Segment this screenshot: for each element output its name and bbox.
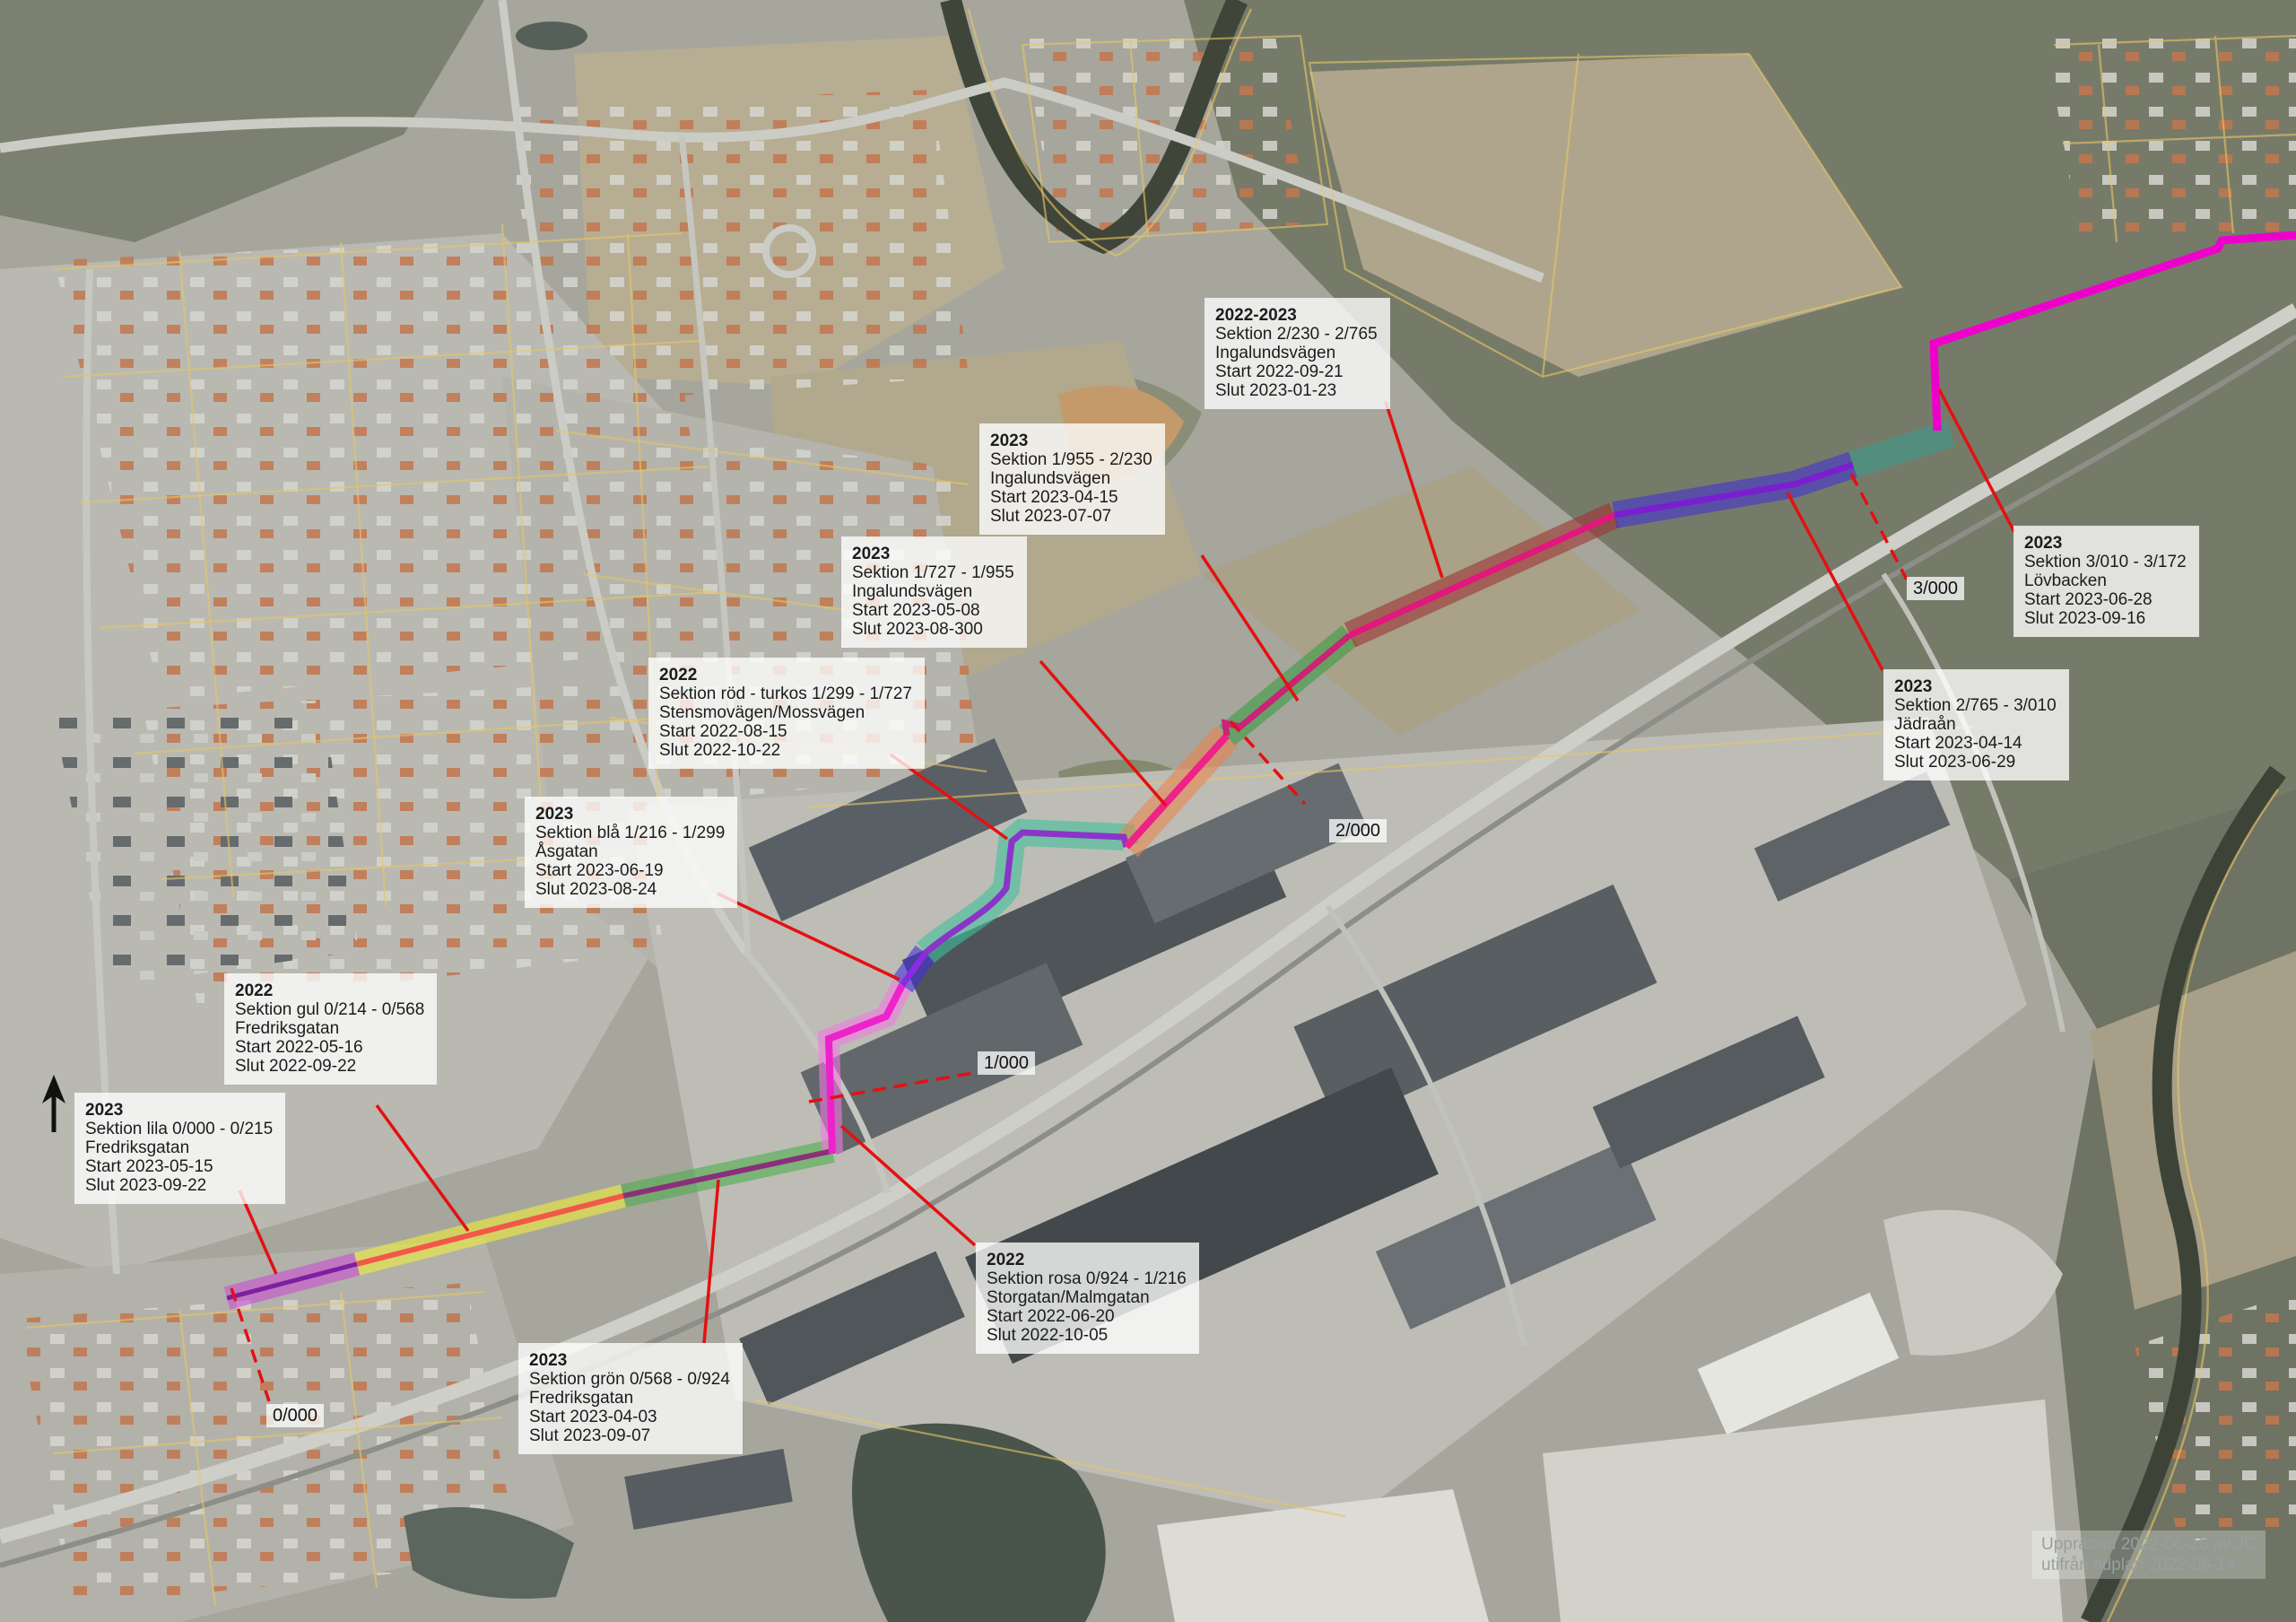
callout-sektion-1955-2230: 2023 Sektion 1/955 - 2/230 Ingalundsväge… (979, 423, 1165, 535)
callout-slut: Slut 2023-09-07 (529, 1426, 730, 1445)
callout-start: Start 2022-06-20 (987, 1307, 1187, 1326)
callout-start: Start 2023-04-14 (1894, 734, 2057, 753)
callout-street: Ingalundsvägen (990, 469, 1152, 488)
callout-year: 2022-2023 (1215, 306, 1378, 325)
callout-section: Sektion 3/010 - 3/172 (2024, 553, 2187, 571)
callout-sektion-gul: 2022 Sektion gul 0/214 - 0/568 Fredriksg… (224, 973, 437, 1085)
callout-year: 2023 (990, 432, 1152, 450)
callout-slut: Slut 2022-10-05 (987, 1326, 1187, 1345)
chainage-label-3000: 3/000 (1907, 577, 1964, 600)
callout-sektion-1727-1955: 2023 Sektion 1/727 - 1/955 Ingalundsväge… (841, 536, 1027, 648)
callout-sektion-lila: 2023 Sektion lila 0/000 - 0/215 Fredriks… (74, 1093, 285, 1204)
callout-street: Ingalundsvägen (852, 582, 1014, 601)
route-line-gron (623, 1151, 832, 1196)
callout-year: 2022 (987, 1251, 1187, 1269)
callout-section: Sektion gul 0/214 - 0/568 (235, 1000, 424, 1019)
callout-section: Sektion röd - turkos 1/299 - 1/727 (659, 685, 912, 703)
callout-start: Start 2023-05-08 (852, 601, 1014, 620)
callout-section: Sektion blå 1/216 - 1/299 (535, 824, 725, 842)
callout-slut: Slut 2022-10-22 (659, 741, 912, 760)
callout-start: Start 2022-09-21 (1215, 362, 1378, 381)
callout-street: Fredriksgatan (529, 1389, 730, 1408)
callout-slut: Slut 2023-01-23 (1215, 381, 1378, 400)
north-arrow-icon (42, 1075, 65, 1132)
callout-street: Ingalundsvägen (1215, 344, 1378, 362)
attribution-line1: Upprättad 2022-06-16 av JC (2041, 1534, 2257, 1555)
attribution-line2: utifrån tidplan 2022-06-14 (2041, 1555, 2257, 1575)
callout-section: Sektion grön 0/568 - 0/924 (529, 1370, 730, 1389)
callout-year: 2023 (529, 1351, 730, 1370)
callout-sektion-rod-turkos: 2022 Sektion röd - turkos 1/299 - 1/727 … (648, 658, 925, 769)
callout-slut: Slut 2023-08-24 (535, 880, 725, 899)
callout-sektion-bla: 2023 Sektion blå 1/216 - 1/299 Åsgatan S… (525, 797, 737, 908)
callout-start: Start 2023-06-28 (2024, 590, 2187, 609)
callout-year: 2022 (235, 981, 424, 1000)
route-band-turkos (926, 833, 1126, 953)
callout-sektion-rosa: 2022 Sektion rosa 0/924 - 1/216 Storgata… (976, 1243, 1199, 1354)
callout-start: Start 2022-08-15 (659, 722, 912, 741)
callout-start: Start 2023-04-15 (990, 488, 1152, 507)
route-overlay (0, 0, 2296, 1622)
callout-street: Fredriksgatan (235, 1019, 424, 1038)
callout-sektion-2230-2765: 2022-2023 Sektion 2/230 - 2/765 Ingalund… (1205, 298, 1390, 409)
callout-street: Åsgatan (535, 842, 725, 861)
callout-slut: Slut 2023-09-22 (85, 1176, 273, 1195)
callout-slut: Slut 2023-07-07 (990, 507, 1152, 526)
callout-start: Start 2022-05-16 (235, 1038, 424, 1057)
callout-sektion-jadraan: 2023 Sektion 2/765 - 3/010 Jädraån Start… (1883, 669, 2069, 780)
callout-year: 2023 (852, 545, 1014, 563)
callout-slut: Slut 2023-08-300 (852, 620, 1014, 639)
construction-plan-map: 2023 Sektion lila 0/000 - 0/215 Fredriks… (0, 0, 2296, 1622)
callout-slut: Slut 2023-09-16 (2024, 609, 2187, 628)
callout-street: Jädraån (1894, 715, 2057, 734)
callout-sektion-lovbacken: 2023 Sektion 3/010 - 3/172 Lövbacken Sta… (2013, 526, 2199, 637)
callout-slut: Slut 2022-09-22 (235, 1057, 424, 1076)
callout-sektion-gron: 2023 Sektion grön 0/568 - 0/924 Fredriks… (518, 1343, 743, 1454)
callout-section: Sektion lila 0/000 - 0/215 (85, 1120, 273, 1138)
callout-start: Start 2023-06-19 (535, 861, 725, 880)
callout-year: 2023 (85, 1101, 273, 1120)
callout-start: Start 2023-04-03 (529, 1408, 730, 1426)
callout-section: Sektion 2/230 - 2/765 (1215, 325, 1378, 344)
callout-year: 2022 (659, 666, 912, 685)
callout-street: Stensmovägen/Mossvägen (659, 703, 912, 722)
callout-street: Fredriksgatan (85, 1138, 273, 1157)
callout-section: Sektion rosa 0/924 - 1/216 (987, 1269, 1187, 1288)
callout-year: 2023 (2024, 534, 2187, 553)
route-line-magenta (1934, 235, 2296, 431)
route-line-orange (1126, 736, 1227, 847)
callout-section: Sektion 1/955 - 2/230 (990, 450, 1152, 469)
callout-street: Storgatan/Malmgatan (987, 1288, 1187, 1307)
callout-start: Start 2023-05-15 (85, 1157, 273, 1176)
callout-year: 2023 (535, 805, 725, 824)
chainage-label-2000: 2/000 (1329, 819, 1387, 842)
route-line-gul (357, 1196, 623, 1264)
callout-street: Lövbacken (2024, 571, 2187, 590)
route-line-crimson (1350, 515, 1614, 635)
callout-slut: Slut 2023-06-29 (1894, 753, 2057, 772)
attribution-note: Upprättad 2022-06-16 av JC utifrån tidpl… (2032, 1530, 2266, 1579)
callout-year: 2023 (1894, 677, 2057, 696)
route-band-teal (1853, 433, 1951, 465)
callout-section: Sektion 2/765 - 3/010 (1894, 696, 2057, 715)
chainage-label-1000: 1/000 (978, 1051, 1035, 1075)
chainage-label-0000: 0/000 (266, 1404, 324, 1427)
callout-section: Sektion 1/727 - 1/955 (852, 563, 1014, 582)
